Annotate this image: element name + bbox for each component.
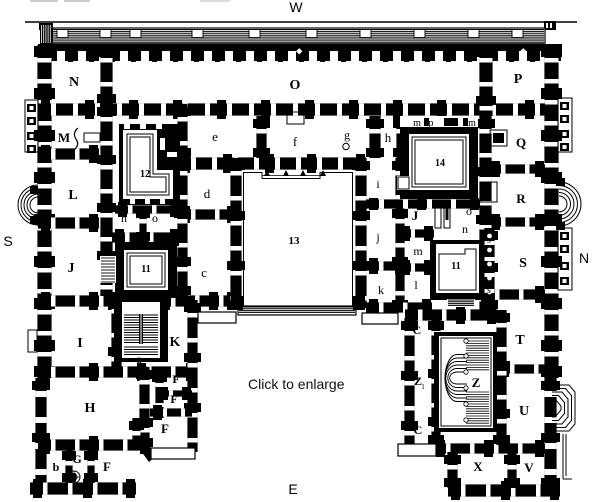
svg-text:R: R	[516, 191, 526, 206]
svg-text:F: F	[170, 392, 177, 406]
svg-text:j: j	[375, 230, 379, 244]
svg-text:T: T	[515, 333, 525, 348]
svg-text:13: 13	[289, 235, 301, 247]
svg-text:Z: Z	[472, 375, 481, 390]
svg-text:m: m	[468, 118, 476, 129]
svg-text:s: s	[487, 235, 491, 246]
svg-text:m: m	[413, 118, 421, 129]
svg-text:C: C	[413, 323, 422, 337]
svg-text:J: J	[68, 261, 75, 276]
svg-text:L: L	[68, 188, 77, 203]
svg-text:S: S	[519, 256, 527, 271]
svg-text:E: E	[288, 481, 297, 497]
svg-text:p: p	[429, 118, 434, 129]
svg-text:f: f	[293, 134, 298, 149]
svg-text:s: s	[487, 285, 491, 296]
svg-text:d: d	[204, 186, 211, 201]
svg-text:W: W	[289, 0, 303, 15]
svg-text:F: F	[161, 421, 169, 436]
svg-text:k: k	[378, 283, 384, 297]
svg-text:N: N	[69, 75, 79, 90]
svg-text:b: b	[53, 460, 60, 474]
svg-text:O: O	[290, 78, 301, 93]
svg-text:e: e	[212, 129, 218, 144]
svg-text:c: c	[201, 265, 207, 280]
svg-text:Click to enlarge: Click to enlarge	[248, 376, 345, 392]
svg-text:a: a	[136, 352, 142, 366]
svg-text:n: n	[121, 211, 127, 225]
svg-text:M: M	[58, 130, 70, 145]
svg-text:F: F	[172, 372, 179, 386]
svg-text:1: 1	[421, 383, 425, 391]
svg-text:S: S	[3, 233, 12, 249]
svg-text:11: 11	[451, 261, 460, 272]
svg-text:11: 11	[141, 264, 150, 275]
svg-text:N: N	[579, 250, 589, 266]
svg-text:o: o	[466, 204, 472, 218]
svg-text:h: h	[385, 130, 392, 145]
svg-text:12: 12	[140, 169, 150, 180]
svg-text:X: X	[473, 459, 483, 474]
svg-text:m: m	[413, 244, 423, 258]
svg-text:g: g	[344, 128, 350, 142]
svg-text:C: C	[414, 423, 423, 437]
svg-text:G: G	[72, 452, 81, 466]
svg-text:V: V	[524, 460, 534, 475]
svg-text:Q: Q	[516, 135, 526, 150]
svg-text:J: J	[412, 208, 419, 223]
svg-text:U: U	[519, 404, 529, 419]
svg-text:o: o	[152, 211, 158, 225]
svg-text:n: n	[462, 222, 468, 236]
svg-text:F: F	[103, 459, 111, 474]
svg-text:I: I	[77, 336, 82, 351]
svg-text:K: K	[170, 335, 181, 350]
svg-text:14: 14	[435, 158, 445, 169]
svg-text:H: H	[85, 401, 96, 416]
svg-text:P: P	[514, 72, 523, 87]
